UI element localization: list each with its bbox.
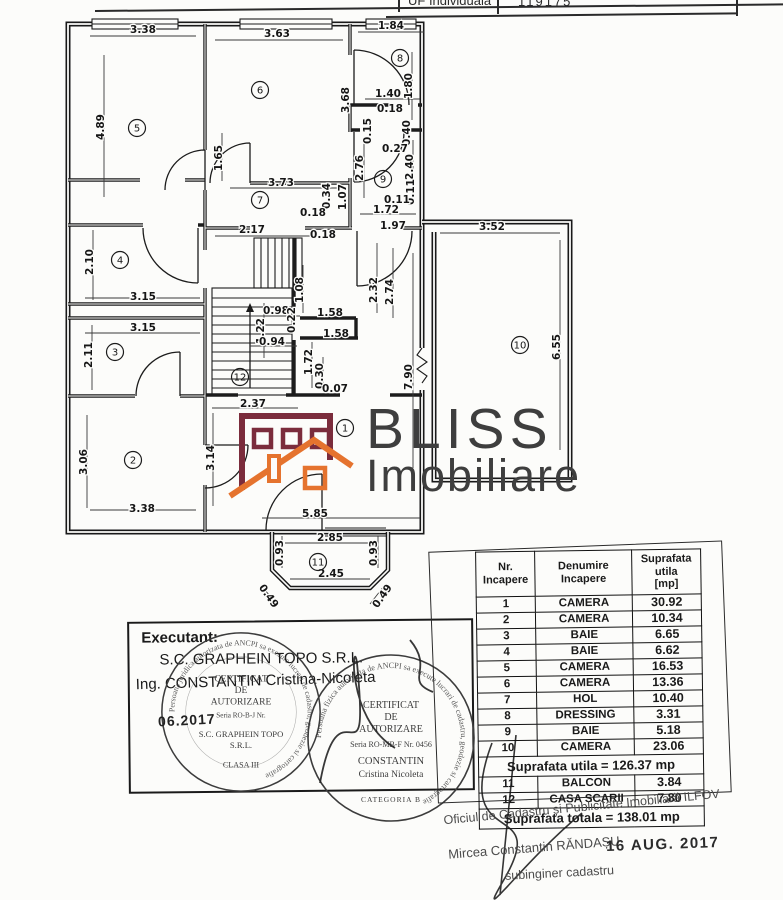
- table-cell: 23.06: [634, 738, 703, 755]
- table-header: Nr. Incapere Denumire Incapere Suprafata…: [476, 549, 702, 597]
- table-cell: 16.53: [633, 658, 702, 675]
- dimension-label: 1.65: [213, 145, 225, 171]
- dimension-label: 1.58: [323, 328, 349, 340]
- table-cell: 13.36: [633, 674, 702, 691]
- dimension-label: 0.27: [382, 143, 408, 155]
- dimension-label: 3.73: [268, 177, 294, 189]
- col-header-nr: Nr. Incapere: [476, 551, 536, 597]
- dimension-label: 0.18: [310, 229, 336, 241]
- dimension-label: 0.93: [274, 540, 286, 566]
- room-number-text: 11: [312, 558, 325, 569]
- floor-plan-drawing: 3.383.631.841.804.893.681.400.180.150.40…: [0, 0, 783, 620]
- room-number-text: 12: [234, 373, 247, 384]
- table-cell: 8: [478, 708, 538, 725]
- table-cell: 10: [478, 740, 538, 757]
- bliss-logo-building-icon: [228, 402, 360, 504]
- table-cell: 5.18: [634, 722, 703, 739]
- stamp1-line: AUTORIZARE: [211, 697, 272, 707]
- dimension-label: 1.80: [403, 73, 415, 99]
- room-areas-table: Nr. Incapere Denumire Incapere Suprafata…: [475, 548, 705, 829]
- table-cell: BAIE: [537, 723, 634, 740]
- table-cell: CAMERA: [537, 675, 634, 692]
- table-cell: CAMERA: [536, 611, 633, 628]
- table-cell: 4: [477, 644, 537, 661]
- dimension-label: 0.15: [362, 118, 374, 144]
- table-cell: CAMERA: [536, 659, 633, 676]
- dimension-label: 0.94: [259, 336, 285, 348]
- dimension-label: 2.17: [239, 224, 265, 236]
- dimension-label: 1.08: [294, 277, 306, 303]
- table-cell: HOL: [537, 691, 634, 708]
- room-number-text: 8: [397, 54, 403, 65]
- table-cell: CAMERA: [535, 595, 632, 612]
- dimension-label: 2.32: [368, 277, 380, 303]
- room-number-text: 3: [112, 348, 118, 359]
- table-cell: 30.92: [632, 594, 701, 611]
- table-cell: 2: [476, 612, 536, 629]
- stamp1-line: S.C. GRAPHEIN TOPO: [199, 729, 284, 739]
- cadastral-floorplan-document: UF Individuala 119175: [0, 0, 783, 900]
- table-cell: 3: [477, 628, 537, 645]
- dimension-label: 1.58: [317, 307, 343, 319]
- table-cell: 6: [477, 676, 537, 693]
- table-cell: 6.62: [633, 642, 702, 659]
- table-cell: 3.31: [634, 706, 703, 723]
- dimension-label: 1.72: [373, 204, 399, 216]
- table-cell: 7: [478, 692, 538, 709]
- dimension-label: 0.34: [321, 183, 333, 209]
- dimension-label: 1.40: [375, 88, 401, 100]
- dimension-label: 1.97: [380, 220, 406, 232]
- stamp1-line: Seria RO-B-J Nr.: [216, 712, 266, 720]
- dimension-label: 0.49: [256, 582, 281, 610]
- table-cell: 10.40: [633, 690, 702, 707]
- dimension-label: 1.07: [337, 184, 349, 210]
- dimension-label: 3.68: [340, 87, 352, 113]
- table-cell: CAMERA: [538, 739, 635, 756]
- room-number-text: 10: [514, 341, 527, 352]
- table-cell: 6.65: [633, 626, 702, 643]
- room-number-text: 7: [257, 196, 263, 207]
- dimension-label: 5.85: [302, 508, 328, 520]
- dimension-label: 3.15: [130, 322, 156, 334]
- dimension-label: 2.40: [404, 154, 416, 180]
- dimension-label: 3.38: [129, 503, 155, 515]
- dimension-label: 0.22: [286, 307, 298, 333]
- dimension-label: 2.11: [83, 342, 95, 368]
- dimension-label: 4.89: [95, 114, 107, 140]
- dimension-label: 6.55: [551, 334, 563, 360]
- room-number-text: 6: [257, 86, 263, 97]
- col-header-denumire: Denumire Incapere: [535, 550, 632, 596]
- dimension-label: 0.18: [300, 207, 326, 219]
- dimension-label: 3.14: [205, 445, 217, 471]
- date-stamp: 16 AUG. 2017: [606, 834, 720, 855]
- table-cell: 5: [477, 660, 537, 677]
- logo-wordmark-line2: Imobiliare: [366, 450, 581, 502]
- dimension-label: 3.15: [130, 291, 156, 303]
- dimension-label: 7.90: [403, 364, 415, 390]
- table-cell: 11: [479, 776, 539, 793]
- stamp-date-overlay: 06.2017: [158, 711, 216, 730]
- dimension-label: 2.74: [384, 279, 396, 305]
- wall-break: [415, 348, 430, 390]
- dimension-label: 2.10: [84, 249, 96, 275]
- table-cell: BAIE: [536, 627, 633, 644]
- stamp1-line: S.R.L.: [230, 740, 252, 750]
- table-cell: BAIE: [536, 643, 633, 660]
- stamp1-line: DE: [235, 686, 248, 696]
- table-cell: 10.34: [632, 610, 701, 627]
- dimension-label: 0.18: [377, 103, 403, 115]
- dimension-label: 2.76: [354, 155, 366, 181]
- dimension-labels: 3.383.631.841.804.893.681.400.180.150.40…: [78, 20, 563, 610]
- table-cell: DRESSING: [537, 707, 634, 724]
- stamp1-line: CERTIFICAT: [214, 674, 268, 684]
- dimension-label: 3.06: [78, 449, 90, 475]
- table-cell: 9: [478, 724, 538, 741]
- dimension-label: 1.84: [378, 20, 404, 32]
- col-header-suprafata: Suprafata utila [mp]: [631, 549, 701, 595]
- room-number-text: 4: [117, 256, 123, 267]
- table-cell: BALCON: [538, 775, 635, 792]
- dimension-label: 3.38: [130, 24, 156, 36]
- room-number-text: 9: [380, 175, 386, 186]
- dimension-label: 3.52: [479, 221, 505, 233]
- dimension-label: 3.63: [264, 28, 290, 40]
- dimension-label: 2.85: [317, 532, 343, 544]
- table-cell: 1: [476, 596, 536, 613]
- room-number-text: 5: [134, 124, 140, 135]
- stamp1-line: CLASA III: [223, 760, 260, 769]
- room-number-text: 2: [130, 456, 136, 467]
- dimension-label: 0.07: [322, 383, 348, 395]
- dimension-label: 0.93: [368, 540, 380, 566]
